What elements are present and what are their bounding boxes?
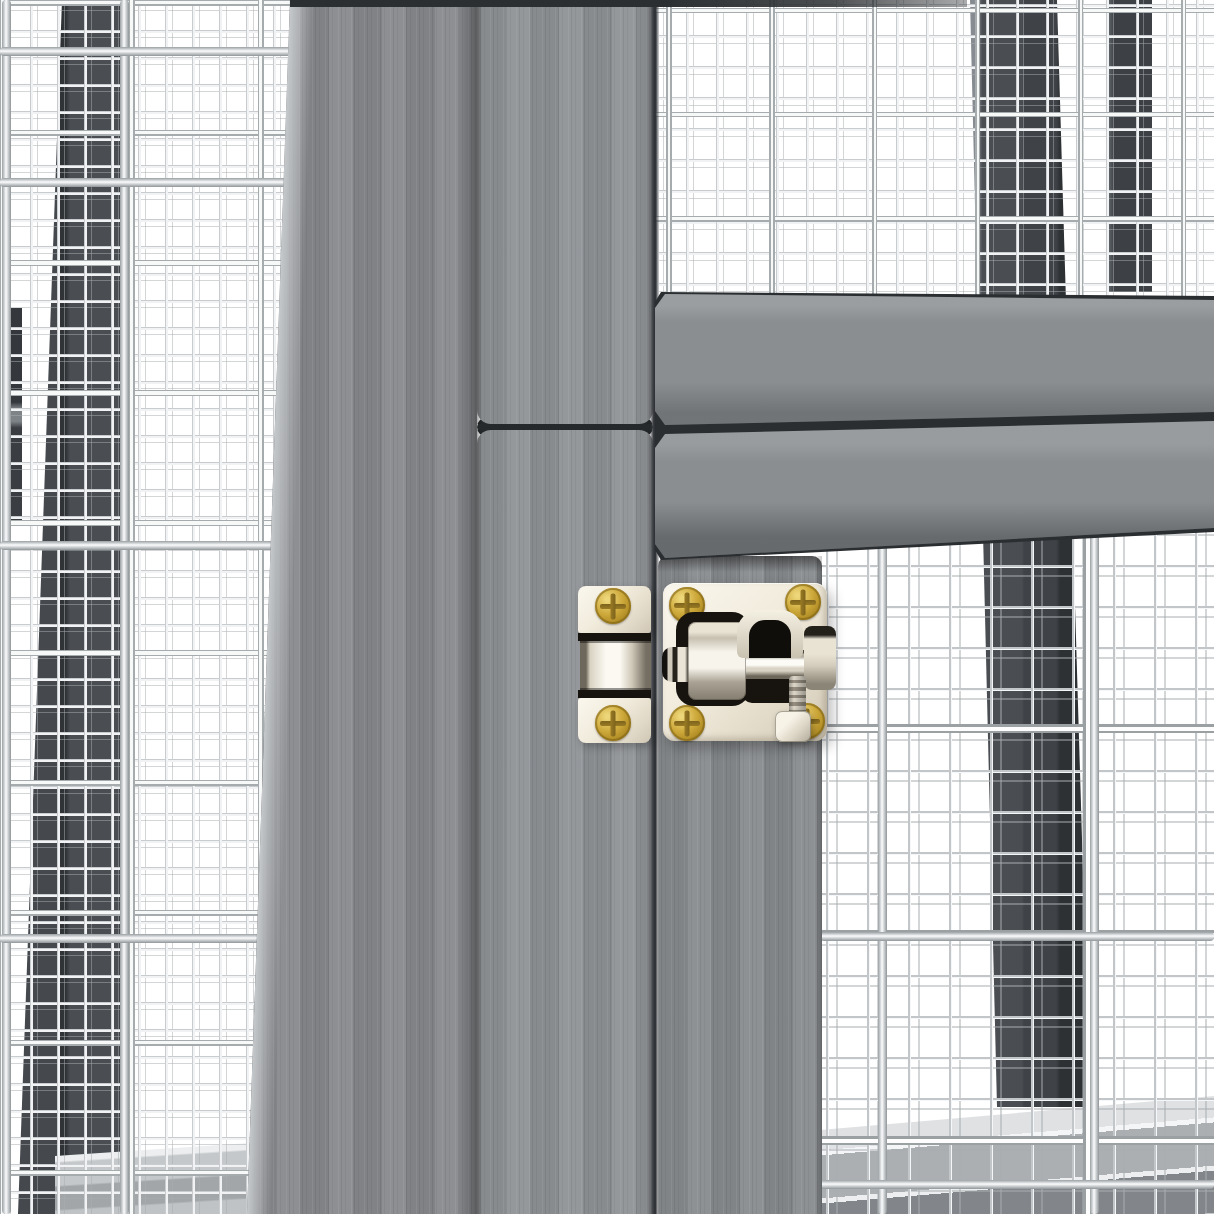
mesh-frame-wire-horizontal-6 bbox=[820, 1180, 1214, 1189]
latch-keeper-staple-barrel bbox=[580, 641, 651, 690]
top-frame-shadow-bar bbox=[290, 0, 967, 7]
latch-knob-handle bbox=[775, 711, 811, 742]
door-stile-lower bbox=[477, 430, 653, 1214]
post-edge-shadow bbox=[461, 0, 477, 1214]
latch-keeper-gap-top bbox=[578, 633, 651, 641]
mesh-panel-upper-right bbox=[652, 0, 1214, 302]
mesh-frame-wire-horizontal-1 bbox=[0, 47, 292, 56]
brass-screw-plate-bottom-left bbox=[669, 705, 705, 741]
brass-screw-keeper-top bbox=[595, 588, 631, 624]
mesh-frame-wire-horizontal-2 bbox=[0, 178, 292, 187]
mesh-frame-wire-horizontal-3 bbox=[0, 541, 292, 550]
horizontal-rails bbox=[655, 292, 1214, 560]
bolt-arch-strap bbox=[737, 610, 803, 658]
bolt-end-bracket bbox=[804, 626, 836, 690]
mesh-frame-wire-vertical-3 bbox=[878, 518, 887, 1214]
mesh-frame-wire-horizontal-5 bbox=[820, 932, 1214, 941]
brass-screw-keeper-bottom bbox=[595, 705, 631, 741]
door-stile-upper bbox=[477, 0, 653, 424]
stile-left-edge-shadow bbox=[477, 430, 482, 1214]
product-photo-canvas: Close-up product photo of a polished nic… bbox=[0, 0, 1214, 1214]
mesh-frame-wire-horizontal-4 bbox=[0, 934, 292, 943]
stile-left-edge-shadow bbox=[477, 0, 482, 424]
latch-keeper-gap-bottom bbox=[578, 690, 651, 698]
mesh-frame-wire-vertical-4 bbox=[1090, 518, 1099, 1214]
